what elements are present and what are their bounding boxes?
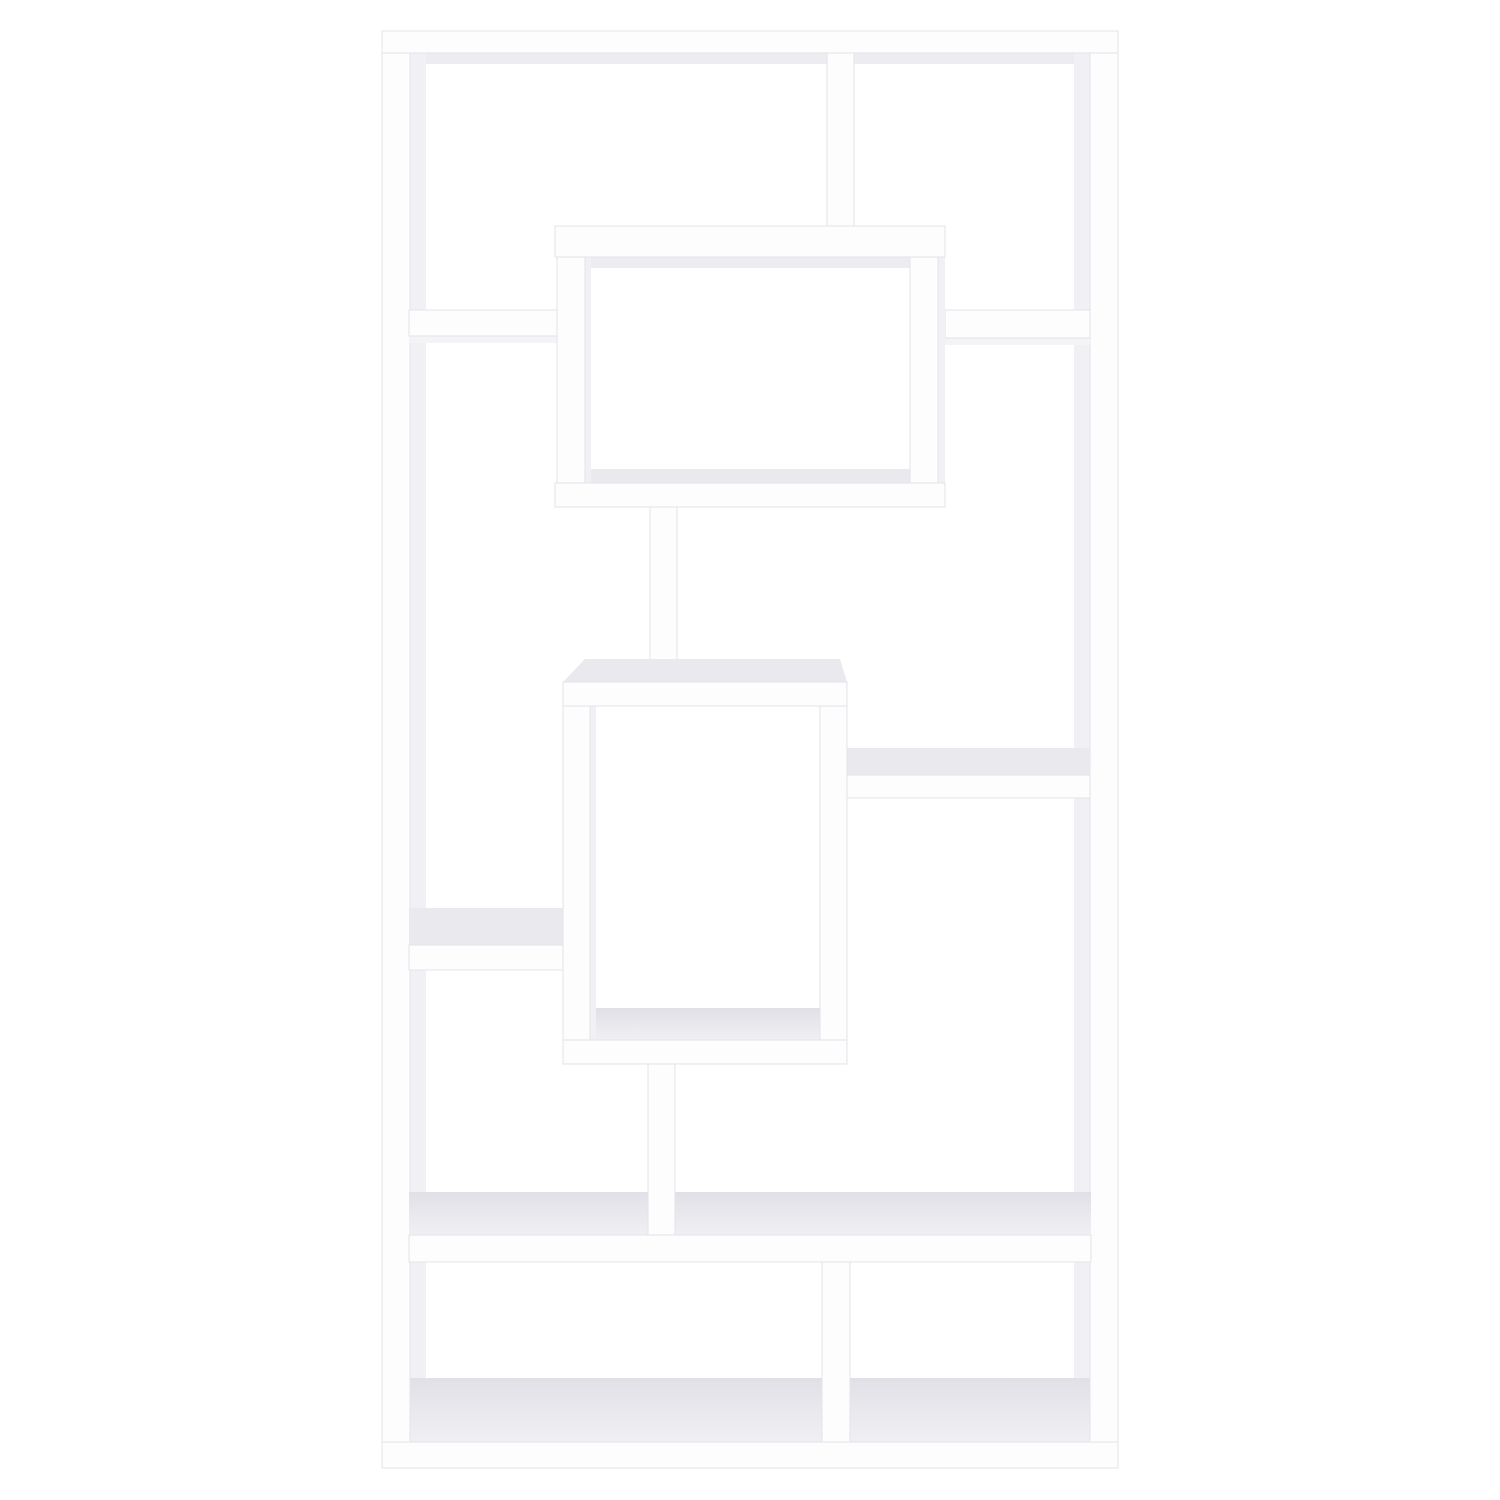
photo-background (0, 0, 1500, 1500)
mid-right-shelf (847, 775, 1090, 798)
lower-shelf (409, 1235, 1091, 1262)
bottom-divider (822, 1262, 850, 1442)
upper-box-ceiling-underside (591, 257, 910, 268)
upper-box-right-wall-outer-face (938, 257, 945, 483)
upper-left-shelf (409, 310, 557, 336)
upper-box-floor-surface (591, 469, 910, 483)
lower-connector-post (648, 1064, 675, 1235)
middle-box-floor-surface (596, 1008, 820, 1040)
middle-box-top-board (563, 682, 847, 706)
bottom-board-top-surface (410, 1378, 1090, 1442)
middle-box-bottom-board (563, 1040, 847, 1064)
upper-box-top-board (555, 226, 945, 257)
upper-box-bottom-board (555, 483, 945, 507)
mid-left-shelf-top-surface (409, 908, 563, 945)
upper-box-left-wall-inner-face (585, 257, 591, 483)
upper-right-shelf (945, 310, 1090, 338)
upper-right-shelf-shadow (945, 338, 1090, 345)
top-divider (827, 53, 854, 230)
upper-box-left-wall (557, 257, 585, 483)
right-upright (1090, 53, 1118, 1442)
upper-left-shelf-shadow (409, 336, 557, 343)
product-photo (0, 0, 1500, 1500)
bookcase-product-image (0, 0, 1500, 1500)
upper-connector-post (650, 507, 677, 682)
middle-box-top-surface (563, 659, 847, 682)
mid-right-shelf-top-surface (847, 748, 1090, 775)
middle-box-right-wall (820, 706, 847, 1040)
lower-shelf-top-surface (409, 1192, 1091, 1235)
middle-box-left-wall-inner-face (590, 706, 596, 1040)
top-board (382, 31, 1118, 53)
left-upright (382, 53, 410, 1442)
upper-box-right-wall (910, 257, 938, 483)
middle-box-left-wall (563, 706, 590, 1040)
bottom-board (382, 1442, 1118, 1468)
top-board-underside (410, 53, 1090, 64)
mid-left-shelf (409, 945, 563, 970)
